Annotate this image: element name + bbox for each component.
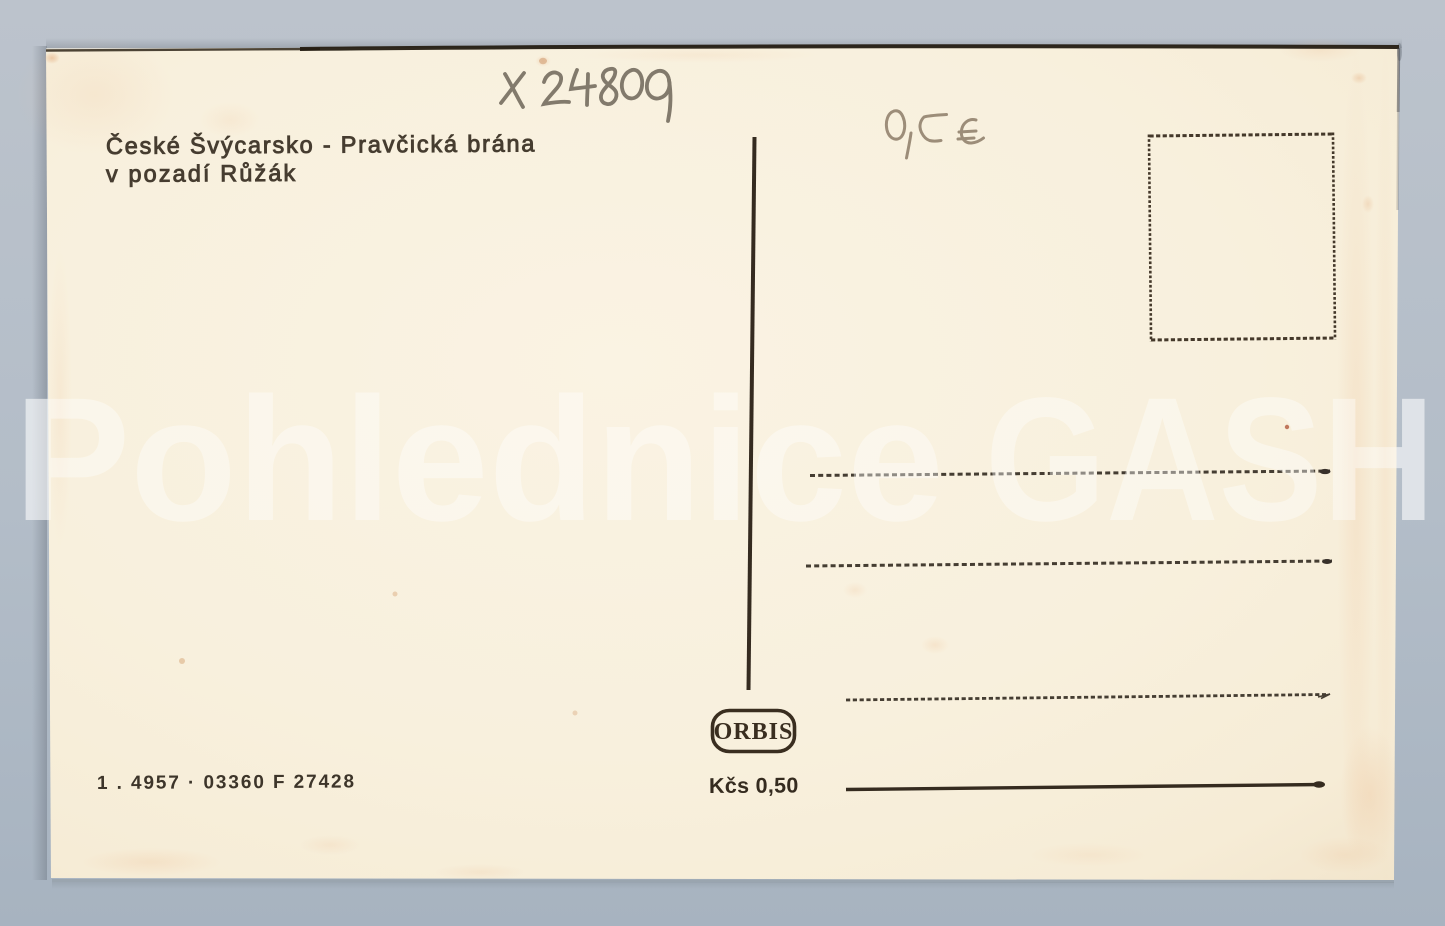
- svg-text:GASH: GASH: [985, 362, 1435, 558]
- svg-text:České Švýcarsko - Pravčická br: České Švýcarsko - Pravčická brána: [106, 129, 536, 159]
- svg-text:Pohlednice: Pohlednice: [14, 362, 944, 558]
- svg-text:ORBIS: ORBIS: [714, 719, 794, 745]
- svg-text:1 . 4957 · 03360 F 27428: 1 . 4957 · 03360 F 27428: [97, 771, 356, 794]
- svg-text:v pozadí Růžák: v pozadí Růžák: [106, 160, 298, 187]
- svg-text:Kčs 0,50: Kčs 0,50: [709, 773, 799, 798]
